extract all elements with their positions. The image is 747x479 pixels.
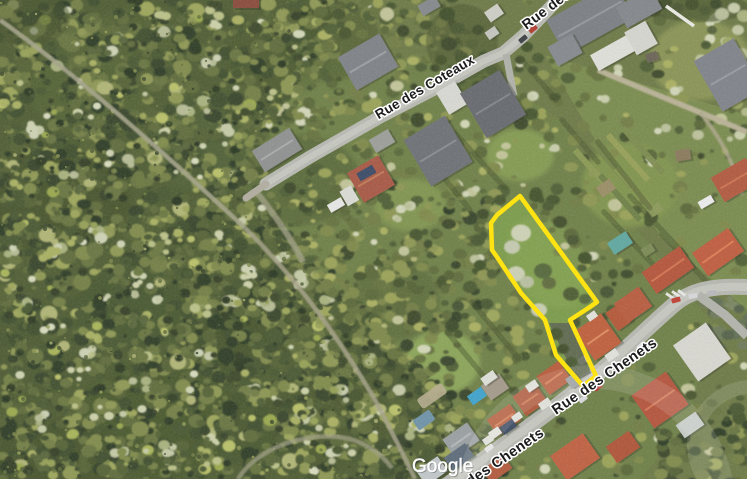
svg-text:Google: Google <box>412 456 473 477</box>
